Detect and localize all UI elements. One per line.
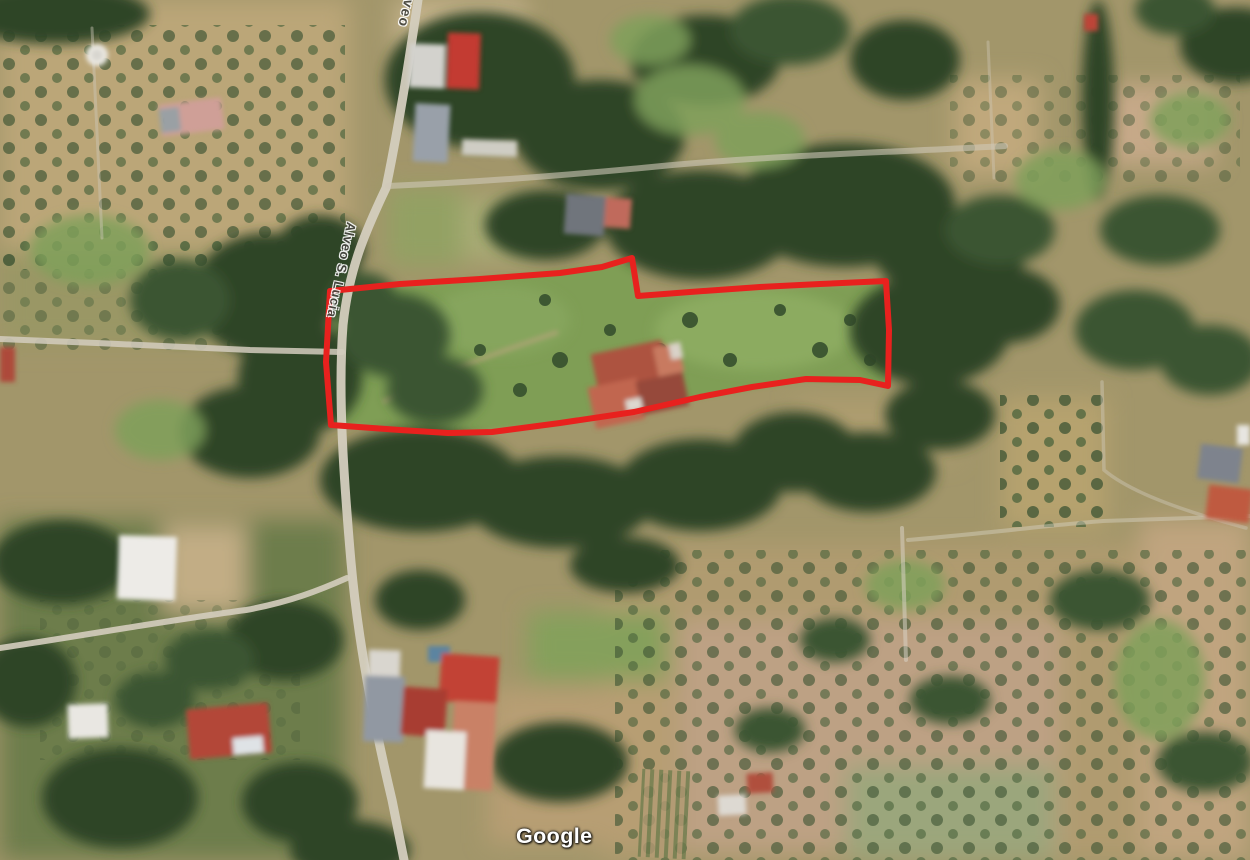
- google-watermark: Google: [516, 824, 592, 849]
- satellite-map-canvas[interactable]: Alveo Alveo S. Lucia Google: [0, 0, 1250, 860]
- building-gray-top: [408, 43, 446, 88]
- warehouse-gray-top: [413, 103, 451, 163]
- white-house: [117, 535, 177, 601]
- building-redroof-mid: [604, 197, 632, 229]
- building-red-roof-top: [446, 32, 481, 89]
- satellite-imagery: [0, 0, 1250, 860]
- building-darkroof-mid: [564, 194, 607, 237]
